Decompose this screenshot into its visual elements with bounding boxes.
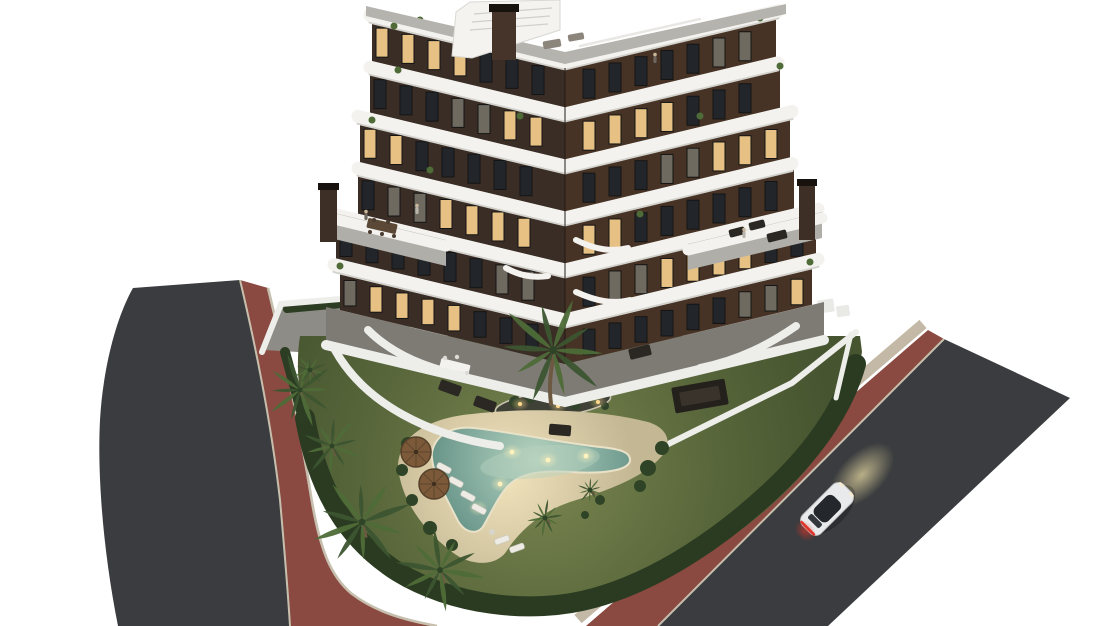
window	[635, 161, 647, 190]
window	[480, 53, 492, 82]
window	[713, 90, 725, 119]
chair	[455, 355, 459, 359]
window	[583, 277, 595, 306]
window	[494, 160, 506, 189]
window	[713, 142, 725, 171]
window	[739, 32, 751, 61]
window	[687, 148, 699, 177]
pool-light	[546, 458, 551, 463]
window	[739, 136, 751, 165]
palm-crown	[588, 488, 593, 493]
window	[687, 304, 699, 330]
palm-crown	[437, 567, 443, 573]
window	[400, 86, 412, 115]
window	[402, 34, 414, 63]
palm-crown	[308, 368, 313, 373]
window	[713, 38, 725, 67]
window	[470, 259, 482, 288]
chimney	[320, 188, 337, 242]
window	[532, 66, 544, 95]
chair	[372, 218, 376, 222]
beach-bush	[595, 495, 605, 505]
balcony-plant	[807, 259, 814, 266]
window	[416, 142, 428, 171]
window	[739, 188, 751, 217]
chair	[443, 356, 447, 360]
parasol	[419, 469, 449, 499]
palm-crown	[543, 516, 548, 521]
balcony-plant	[517, 113, 524, 120]
window	[440, 200, 452, 229]
window	[687, 200, 699, 229]
balcony-plant	[395, 67, 402, 74]
render-canvas	[0, 0, 1110, 626]
person	[415, 204, 419, 214]
beach-bush	[581, 511, 589, 519]
window	[530, 117, 542, 146]
parasol	[401, 437, 431, 467]
window	[687, 96, 699, 125]
balcony-plant	[697, 113, 704, 120]
window	[466, 206, 478, 235]
window	[364, 129, 376, 158]
window	[661, 50, 673, 79]
window	[661, 154, 673, 183]
window	[442, 148, 454, 177]
window	[609, 219, 621, 248]
beach-bush	[406, 494, 418, 506]
window	[609, 167, 621, 196]
window	[478, 105, 490, 134]
pool-light	[584, 454, 589, 459]
person	[653, 53, 657, 63]
window	[609, 271, 621, 300]
beach-bush	[396, 464, 408, 476]
roof-chimney	[492, 10, 516, 60]
balcony-plant	[427, 167, 434, 174]
balcony-plant	[777, 63, 784, 70]
island-light	[518, 402, 522, 406]
window	[422, 299, 434, 325]
chair	[465, 371, 469, 375]
palm-crown	[549, 346, 557, 354]
window	[765, 286, 777, 312]
window	[583, 69, 595, 98]
window	[739, 84, 751, 113]
beach-bush	[634, 480, 646, 492]
window	[376, 28, 388, 57]
window	[370, 287, 382, 313]
roof-chimney-cap	[489, 4, 519, 12]
person	[364, 210, 368, 220]
window	[500, 318, 512, 344]
palm-crown	[297, 387, 302, 392]
storage-box	[836, 305, 850, 318]
window	[635, 265, 647, 294]
window	[661, 310, 673, 336]
window	[609, 323, 621, 349]
chimney-cap	[318, 183, 339, 190]
window	[428, 41, 440, 70]
window	[504, 111, 516, 140]
palm-crown	[359, 519, 366, 526]
balcony-plant	[369, 117, 376, 124]
window	[520, 167, 532, 196]
window	[396, 293, 408, 319]
beach-bush	[655, 441, 669, 455]
window	[452, 98, 464, 127]
window	[474, 312, 486, 338]
window	[374, 80, 386, 109]
chair	[386, 220, 390, 224]
balcony-plant	[391, 23, 398, 30]
chair	[368, 230, 372, 234]
window	[390, 136, 402, 165]
window	[388, 187, 400, 216]
pool-light	[510, 450, 515, 455]
side-table	[489, 529, 495, 535]
window	[506, 59, 518, 88]
window	[468, 154, 480, 183]
window	[635, 109, 647, 138]
balcony-plant	[637, 211, 644, 218]
window	[661, 258, 673, 287]
chimney	[799, 184, 815, 240]
window	[344, 280, 356, 306]
window	[426, 92, 438, 121]
window	[518, 218, 530, 247]
window	[609, 115, 621, 144]
window	[687, 44, 699, 73]
chair	[392, 234, 396, 238]
window	[661, 206, 673, 235]
roof-sofa	[568, 32, 585, 42]
window	[492, 212, 504, 241]
window	[765, 130, 777, 159]
chimney-cap	[797, 179, 817, 186]
pool-light	[498, 482, 503, 487]
roof-sofa	[542, 38, 561, 49]
island-light	[596, 400, 600, 404]
window	[448, 305, 460, 331]
window	[713, 194, 725, 223]
window	[583, 121, 595, 150]
lounge-set	[549, 424, 572, 437]
balcony-plant	[337, 263, 344, 270]
window	[609, 63, 621, 92]
window	[713, 298, 725, 324]
architectural-render	[0, 0, 1110, 626]
window	[635, 57, 647, 86]
person	[742, 228, 746, 238]
window	[635, 317, 647, 343]
beach-bush	[640, 460, 656, 476]
window	[661, 102, 673, 131]
window	[739, 292, 751, 318]
window	[791, 279, 803, 305]
palm-crown	[330, 444, 335, 449]
chair	[380, 232, 384, 236]
window	[362, 181, 374, 210]
window	[765, 182, 777, 211]
window	[583, 173, 595, 202]
